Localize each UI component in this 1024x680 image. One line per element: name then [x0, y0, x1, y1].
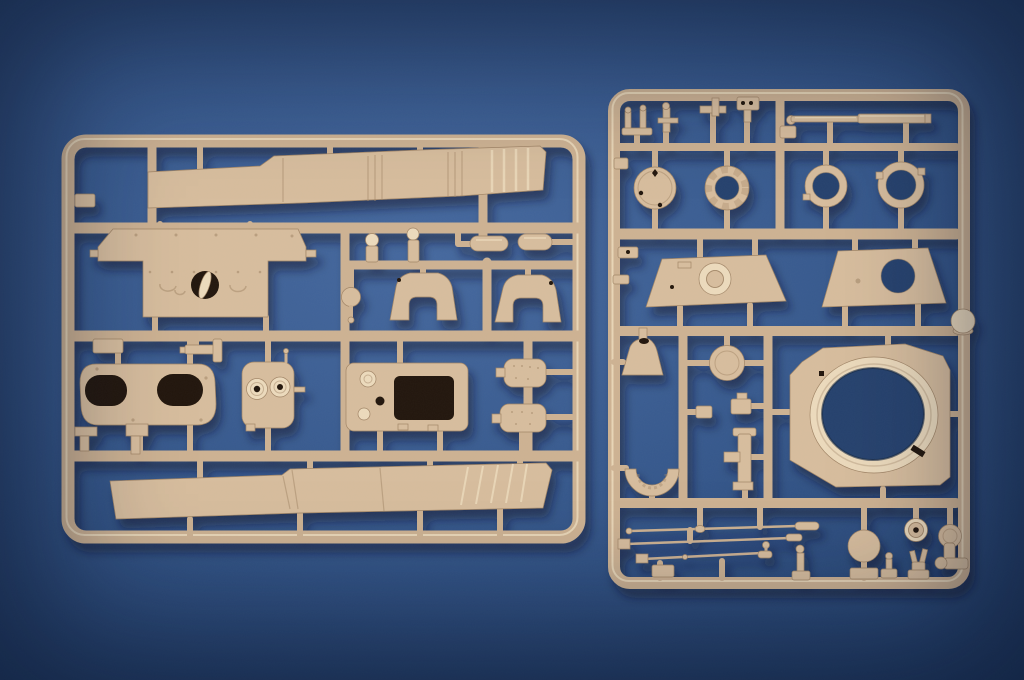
film-grain-overlay — [0, 0, 1024, 680]
photo-backdrop — [0, 0, 1024, 680]
sprue-photo — [0, 0, 1024, 680]
